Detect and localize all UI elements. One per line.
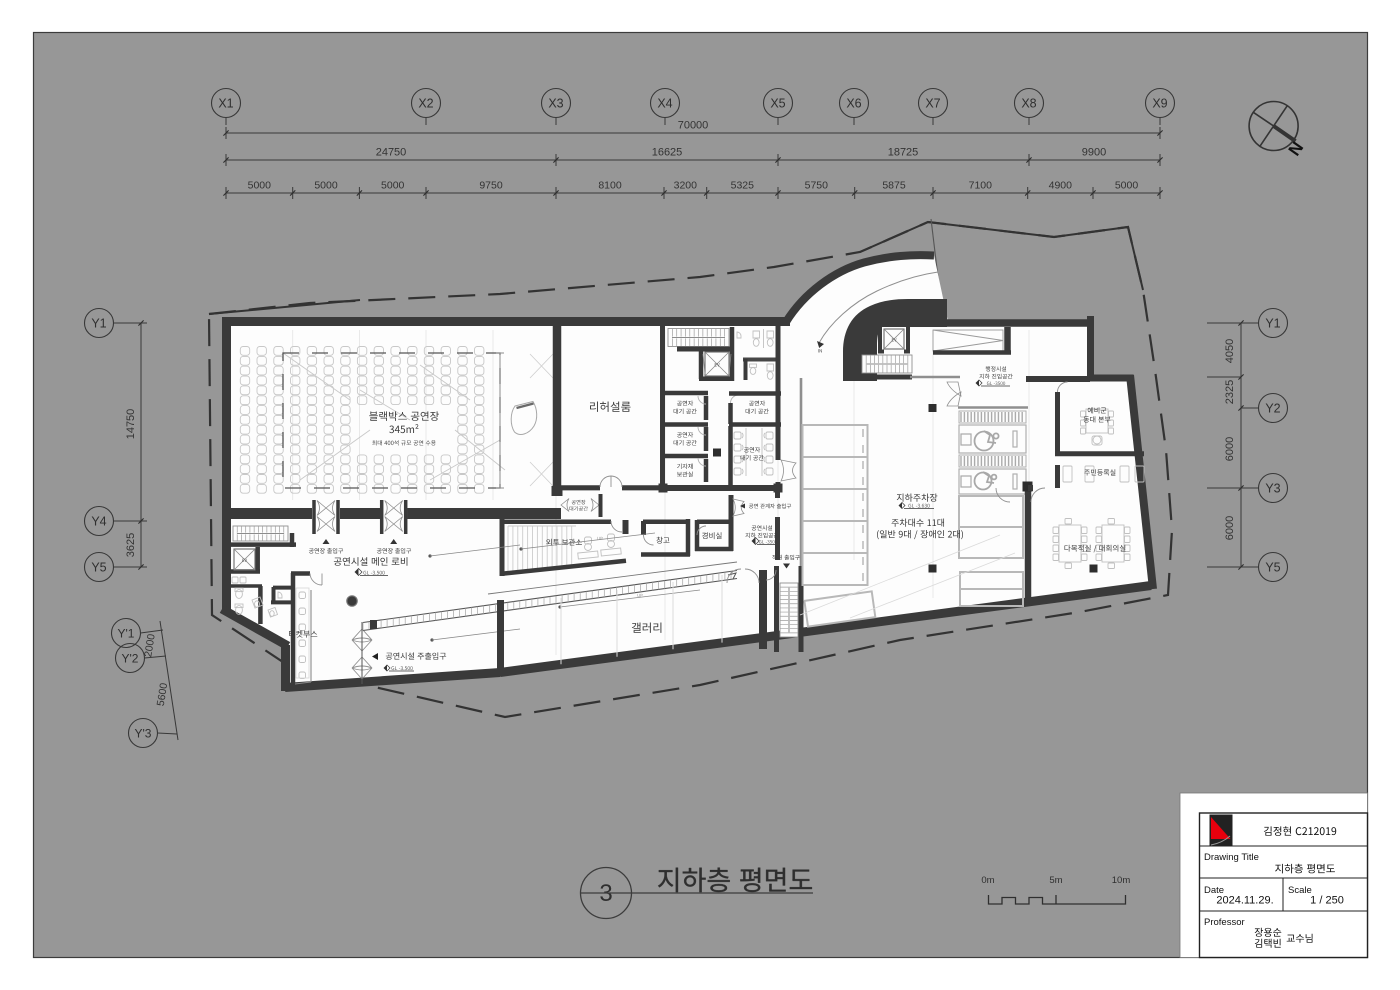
svg-text:Y4: Y4 xyxy=(91,515,106,529)
svg-text:Y'2: Y'2 xyxy=(122,652,139,666)
svg-text:5875: 5875 xyxy=(882,180,906,192)
svg-text:3200: 3200 xyxy=(674,180,698,192)
svg-text:3625: 3625 xyxy=(125,533,137,557)
svg-text:5325: 5325 xyxy=(731,180,755,192)
svg-text:6000: 6000 xyxy=(1224,437,1236,461)
svg-text:Y1: Y1 xyxy=(91,317,106,331)
svg-text:10m: 10m xyxy=(1112,875,1131,886)
svg-text:16625: 16625 xyxy=(652,147,683,159)
svg-text:Y1: Y1 xyxy=(1265,317,1280,331)
svg-text:5000: 5000 xyxy=(248,180,272,192)
svg-text:Professor: Professor xyxy=(1204,917,1245,928)
svg-text:70000: 70000 xyxy=(678,120,709,132)
svg-text:5750: 5750 xyxy=(805,180,829,192)
svg-text:9900: 9900 xyxy=(1082,147,1106,159)
svg-text:18725: 18725 xyxy=(888,147,919,159)
svg-text:9750: 9750 xyxy=(479,180,503,192)
svg-text:Y5: Y5 xyxy=(91,561,106,575)
svg-text:Y2: Y2 xyxy=(1265,402,1280,416)
svg-text:7100: 7100 xyxy=(969,180,993,192)
svg-text:5000: 5000 xyxy=(381,180,405,192)
svg-text:14750: 14750 xyxy=(125,409,137,440)
svg-text:X2: X2 xyxy=(418,97,433,111)
svg-text:Y5: Y5 xyxy=(1265,561,1280,575)
svg-text:X3: X3 xyxy=(548,97,563,111)
svg-text:6000: 6000 xyxy=(1224,516,1236,540)
svg-text:X4: X4 xyxy=(657,97,672,111)
svg-text:Y'1: Y'1 xyxy=(118,627,135,641)
svg-text:8100: 8100 xyxy=(598,180,622,192)
svg-text:4050: 4050 xyxy=(1224,339,1236,363)
svg-text:Y3: Y3 xyxy=(1265,482,1280,496)
svg-text:5m: 5m xyxy=(1049,875,1062,886)
svg-text:2325: 2325 xyxy=(1224,380,1236,404)
svg-text:Drawing Title: Drawing Title xyxy=(1204,852,1259,863)
svg-text:X6: X6 xyxy=(846,97,861,111)
svg-text:24750: 24750 xyxy=(376,147,407,159)
svg-text:Scale: Scale xyxy=(1288,885,1312,896)
svg-text:5000: 5000 xyxy=(314,180,338,192)
svg-text:X9: X9 xyxy=(1152,97,1167,111)
svg-text:X1: X1 xyxy=(218,97,233,111)
svg-text:0m: 0m xyxy=(981,875,994,886)
svg-text:Y'3: Y'3 xyxy=(135,727,152,741)
svg-text:4900: 4900 xyxy=(1049,180,1073,192)
svg-text:1 / 250: 1 / 250 xyxy=(1310,895,1344,907)
svg-text:2024.11.29.: 2024.11.29. xyxy=(1216,895,1273,907)
svg-text:X5: X5 xyxy=(770,97,785,111)
svg-text:X8: X8 xyxy=(1021,97,1036,111)
svg-text:X7: X7 xyxy=(925,97,940,111)
svg-text:5000: 5000 xyxy=(1115,180,1139,192)
